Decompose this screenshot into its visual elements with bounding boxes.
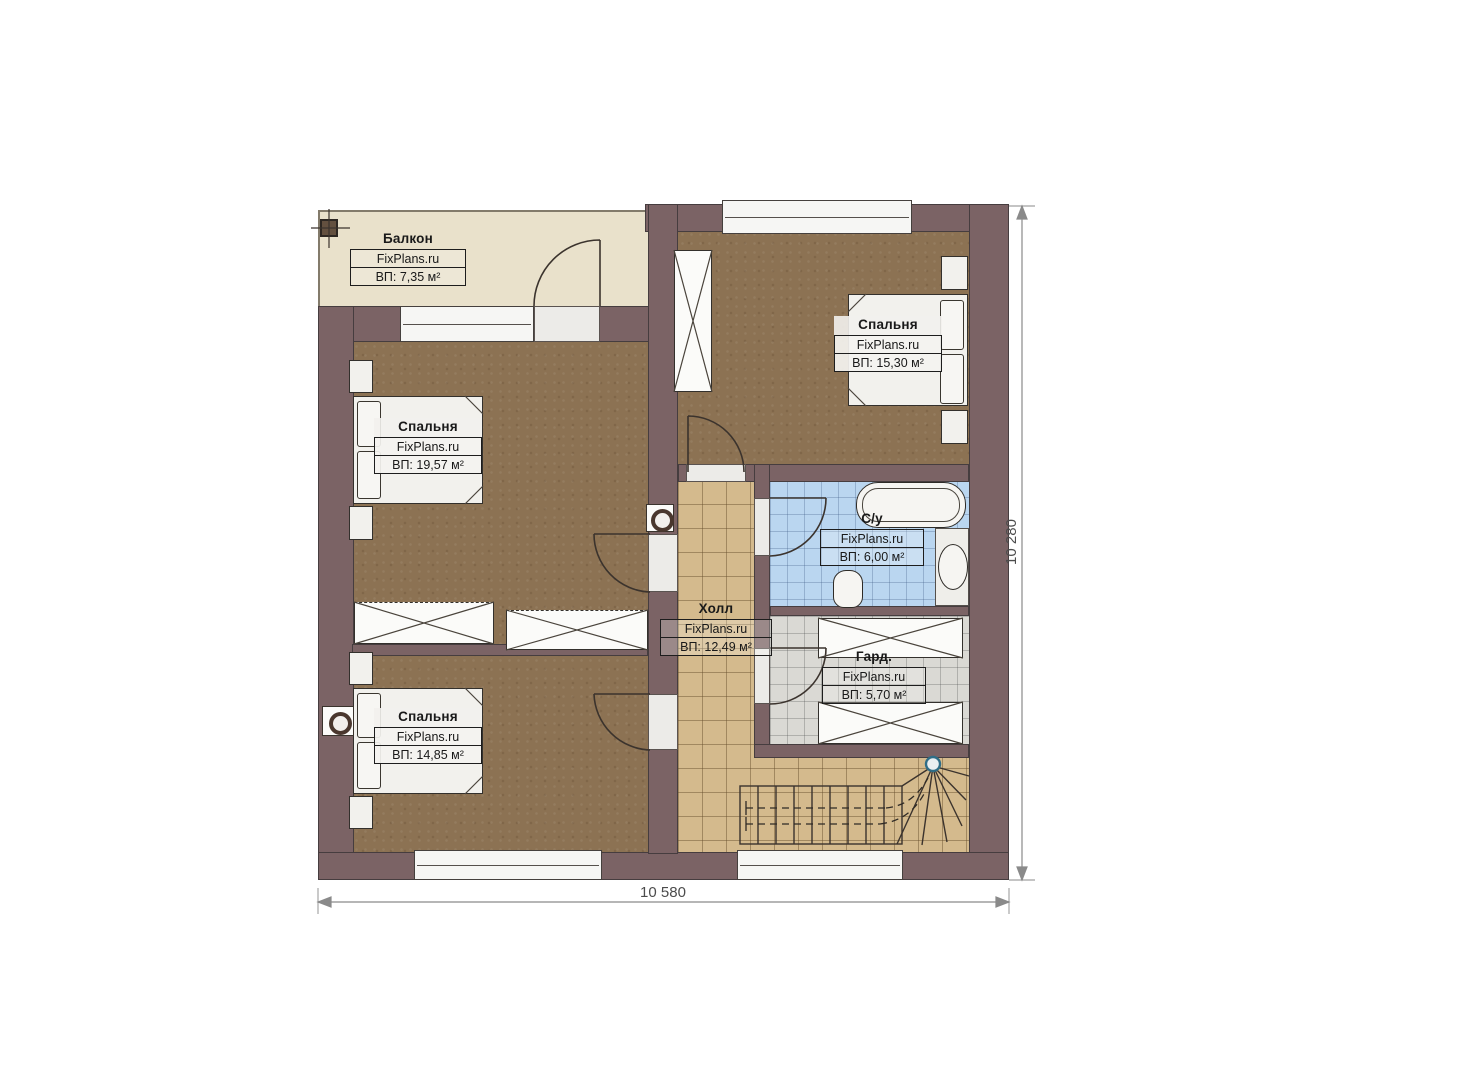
floor-plan-stage: Балкон FixPlans.ru ВП: 7,35 м² Спальня F… xyxy=(0,0,1473,1080)
room-name: Спальня xyxy=(374,708,482,727)
dimension-width-label: 10 580 xyxy=(593,884,733,901)
room-name: Спальня xyxy=(834,316,942,335)
room-label-hall: Холл FixPlans.ru ВП: 12,49 м² xyxy=(660,600,772,656)
room-name: С/у xyxy=(820,510,924,529)
room-name: Спальня xyxy=(374,418,482,437)
room-label-bedroom-topright: Спальня FixPlans.ru ВП: 15,30 м² xyxy=(834,316,942,372)
room-info-box: FixPlans.ru ВП: 5,70 м² xyxy=(822,667,926,704)
room-area: ВП: 12,49 м² xyxy=(661,637,771,655)
room-area: ВП: 6,00 м² xyxy=(821,547,923,565)
room-label-bathroom: С/у FixPlans.ru ВП: 6,00 м² xyxy=(820,510,924,566)
vent-shaft-hall-icon xyxy=(646,504,674,532)
room-brand: FixPlans.ru xyxy=(375,728,481,745)
room-label-wardrobe: Гард. FixPlans.ru ВП: 5,70 м² xyxy=(822,648,926,704)
room-brand: FixPlans.ru xyxy=(823,668,925,685)
room-info-box: FixPlans.ru ВП: 14,85 м² xyxy=(374,727,482,764)
room-area: ВП: 5,70 м² xyxy=(823,685,925,703)
room-area: ВП: 7,35 м² xyxy=(351,267,465,285)
room-brand: FixPlans.ru xyxy=(661,620,771,637)
room-label-bedroom-topleft: Спальня FixPlans.ru ВП: 19,57 м² xyxy=(374,418,482,474)
room-name: Балкон xyxy=(350,230,466,249)
room-brand: FixPlans.ru xyxy=(375,438,481,455)
room-label-bedroom-bottomleft: Спальня FixPlans.ru ВП: 14,85 м² xyxy=(374,708,482,764)
room-label-balcony: Балкон FixPlans.ru ВП: 7,35 м² xyxy=(350,230,466,286)
vent-shaft-leftwall-icon xyxy=(322,706,354,736)
plan-linework xyxy=(0,0,1473,1080)
room-area: ВП: 15,30 м² xyxy=(835,353,941,371)
room-brand: FixPlans.ru xyxy=(351,250,465,267)
room-info-box: FixPlans.ru ВП: 15,30 м² xyxy=(834,335,942,372)
room-brand: FixPlans.ru xyxy=(821,530,923,547)
room-info-box: FixPlans.ru ВП: 19,57 м² xyxy=(374,437,482,474)
room-name: Гард. xyxy=(822,648,926,667)
room-brand: FixPlans.ru xyxy=(835,336,941,353)
room-info-box: FixPlans.ru ВП: 6,00 м² xyxy=(820,529,924,566)
room-area: ВП: 19,57 м² xyxy=(375,455,481,473)
room-area: ВП: 14,85 м² xyxy=(375,745,481,763)
room-info-box: FixPlans.ru ВП: 12,49 м² xyxy=(660,619,772,656)
stairs-linework xyxy=(740,766,969,845)
room-name: Холл xyxy=(660,600,772,619)
dimension-height-label: 10 280 xyxy=(1003,492,1023,592)
room-info-box: FixPlans.ru ВП: 7,35 м² xyxy=(350,249,466,286)
